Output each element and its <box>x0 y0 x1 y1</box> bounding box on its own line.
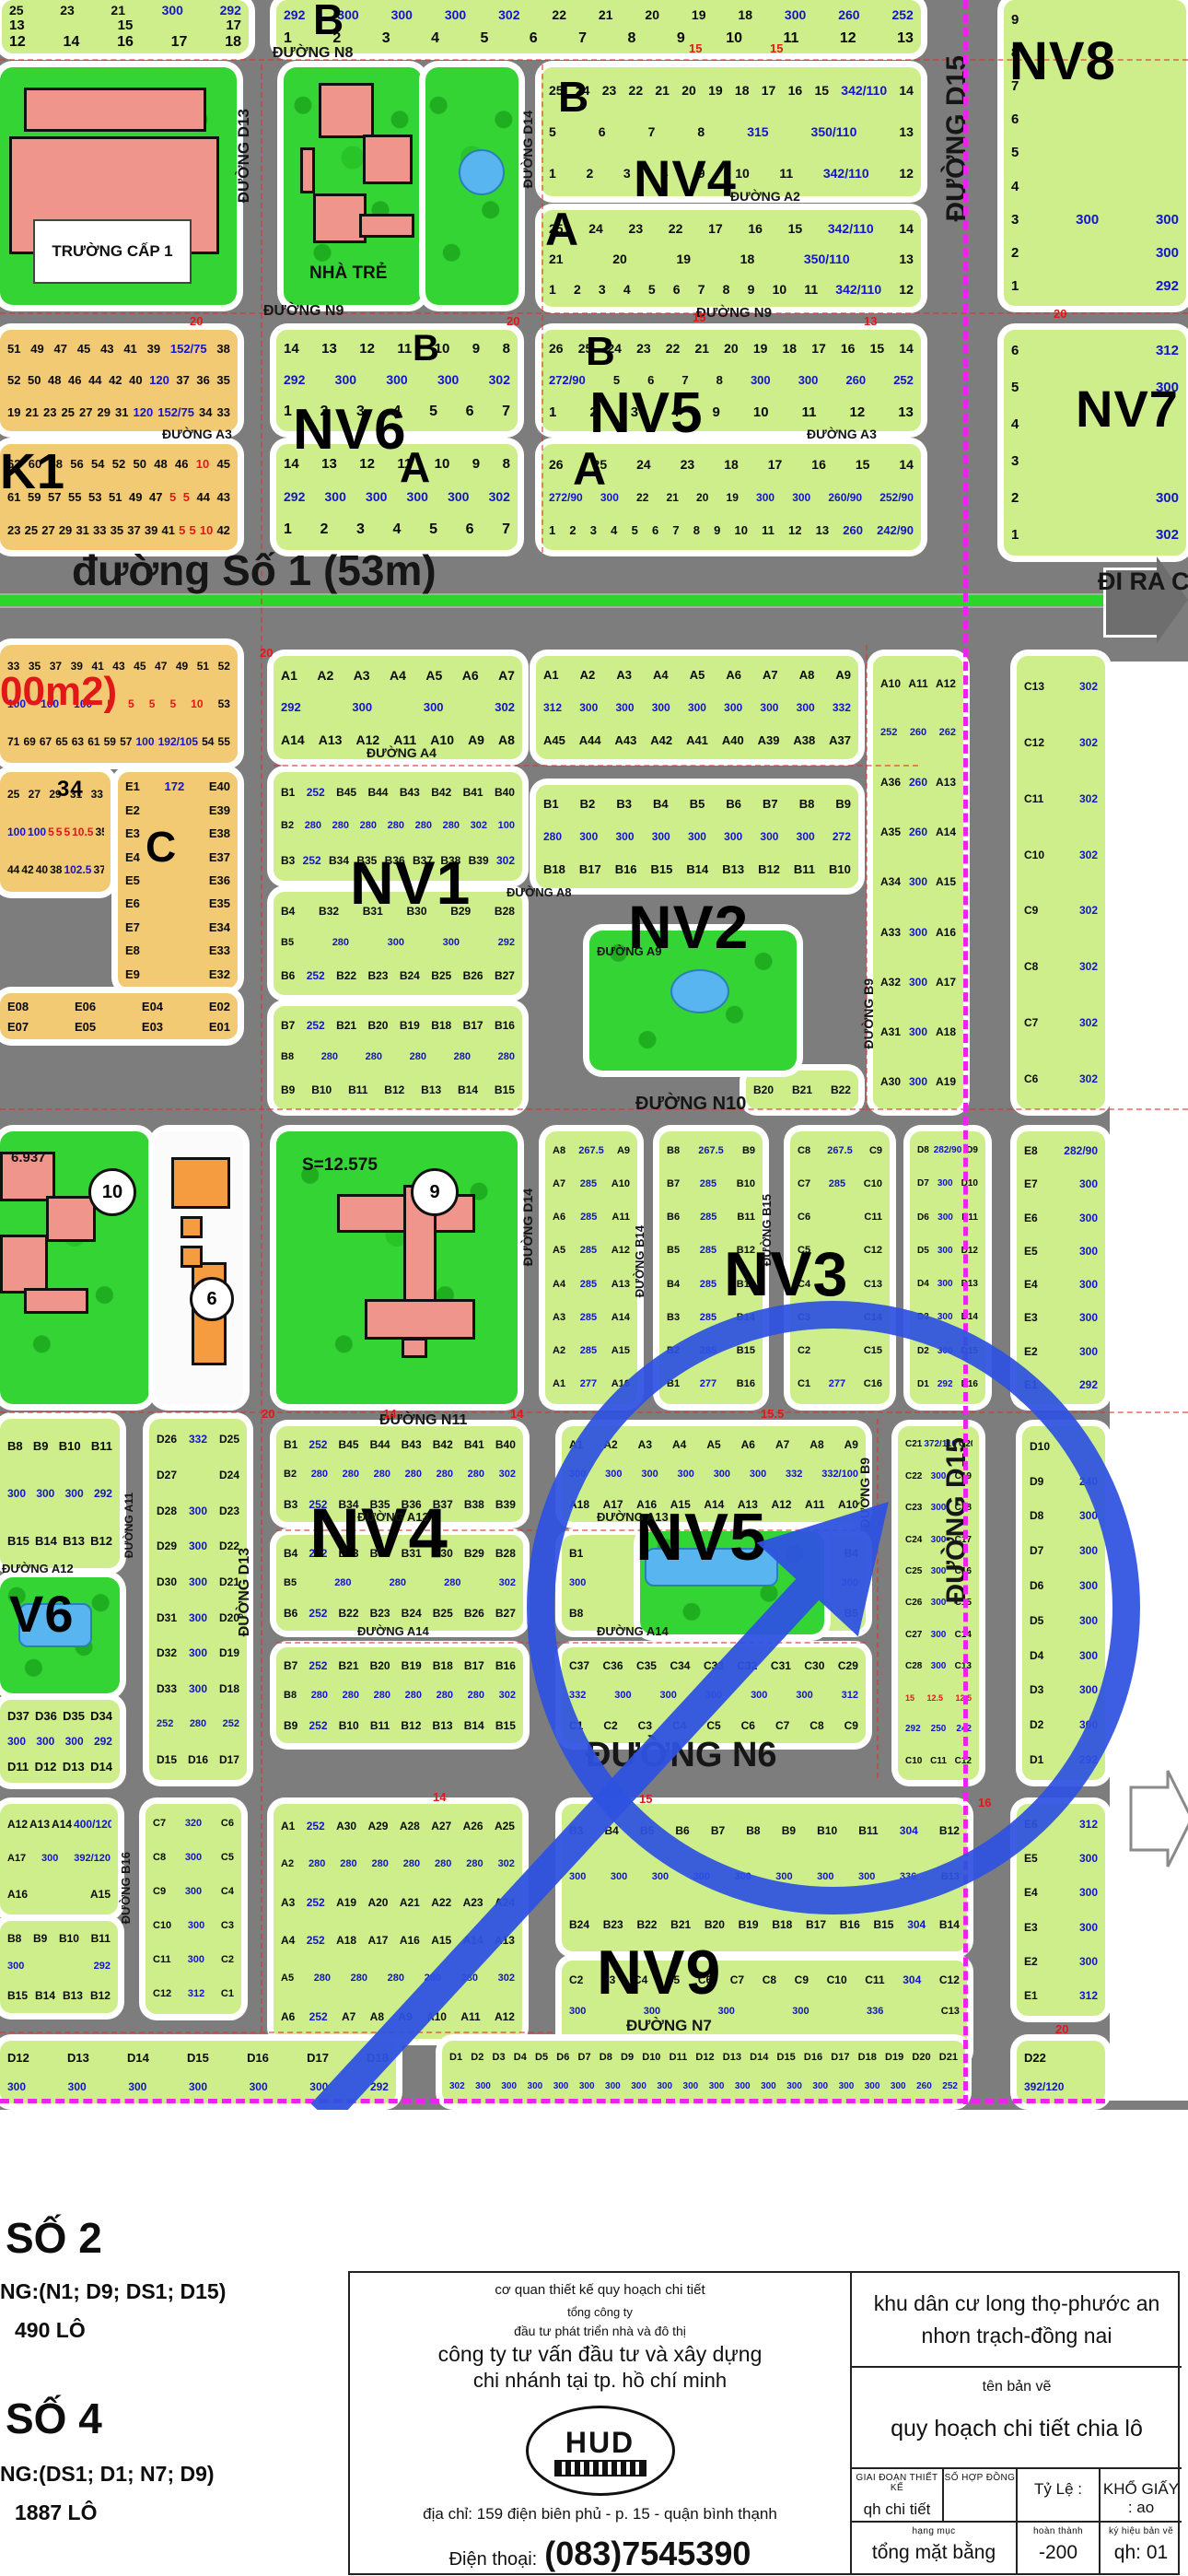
plot-row: 300292 <box>6 1961 111 1972</box>
plot-row: A5285A12 <box>552 1246 631 1256</box>
plot-row: B18B17B16B15B14B13B12B11B10 <box>542 863 852 875</box>
dimension-label: 20 <box>262 1408 274 1420</box>
phone-label: Điện thoại: <box>449 2549 538 2570</box>
pond <box>459 149 505 195</box>
road-centerline <box>0 312 1188 314</box>
plot-row: E2300 <box>1023 1956 1099 1967</box>
plot-row: 300300300300300300300300336B13 <box>568 1872 961 1882</box>
zone-label-b: B <box>413 332 440 366</box>
designer-phone-row: Điện thoại: (083)7545390 <box>350 2535 850 2573</box>
plot-block-nv3-a: A8267.5A9A7285A10A6285A11A5285A12A4285A1… <box>545 1131 637 1404</box>
plot-row: D3300D14 <box>916 1313 979 1322</box>
building <box>300 147 315 193</box>
plot-row: D9240 <box>1029 1476 1099 1487</box>
street-label: ĐƯỜNG A3 <box>162 427 232 440</box>
plot-row: 10010055510.53536 <box>6 826 104 837</box>
plot-row: C8267.5C9 <box>797 1146 883 1156</box>
plot-block-nv2-b: B1B2B3B4B5B6B7B8B92803003003003003003003… <box>536 785 858 888</box>
plot-row: A3285A14 <box>552 1313 631 1323</box>
plot-row: 292250242 <box>904 1725 973 1734</box>
plot-row: D12D13D14D15D16D17D18 <box>6 2052 390 2064</box>
dimension-label: 14 <box>510 1408 523 1420</box>
drawing-name-value: quy hoạch chi tiết chia lô <box>852 2416 1182 2442</box>
title-block-designer: cơ quan thiết kế quy hoạch chi tiết tổng… <box>350 2273 852 2573</box>
plot-row: 332300300300300300312 <box>568 1691 859 1701</box>
plot-row: E4E37 <box>124 851 231 863</box>
plot-row: 1512.512.5 <box>904 1694 973 1703</box>
completion-cell: hoàn thành -200 <box>1018 2523 1101 2575</box>
plot-row: C9302 <box>1023 905 1099 916</box>
sheet-code-value: qh: 01 <box>1101 2542 1182 2564</box>
plot-block-c-block: E1172E40E2E39E3E38E4E37E5E36E6E35E7E34E8… <box>118 772 238 989</box>
plot-row: E1292 <box>1023 1379 1099 1390</box>
plot-row: 6 <box>1010 112 1180 126</box>
category-label: hạng mục <box>852 2526 1016 2536</box>
building <box>359 214 414 238</box>
plot-row: B20B21B22 <box>752 1084 852 1095</box>
plot-row: D1D2D3D4D5D6D7D8D9D10D11D12D13D14D15D16D… <box>448 2053 959 2063</box>
plot-row: 21201918350/11013 <box>548 252 914 265</box>
plot-block-nv5-r3: C37C36C35C34C33C32C31C30C293323003003003… <box>562 1647 866 1743</box>
plot-block-k1-upper: 51494745434139152/7538525048464442401203… <box>0 330 238 431</box>
plot-row: B8267.5B9 <box>666 1146 756 1156</box>
phone-number: (083)7545390 <box>544 2535 751 2573</box>
plot-block-d-row-right: D1D2D3D4D5D6D7D8D9D10D11D12D13D14D15D16D… <box>442 2041 965 2103</box>
plot-row: B6252B22B23B24B25B26B27 <box>280 970 516 981</box>
plot-block-c-strip: C13302C12302C11302C10302C9302C8302C7302C… <box>1017 656 1105 1109</box>
building <box>171 1157 230 1209</box>
building <box>181 1246 203 1268</box>
map-label: 6.937 <box>11 1150 46 1165</box>
title-block-row3: GIAI ĐOẠN THIẾT KẾ qh chi tiết SỐ HỢP ĐỒ… <box>852 2469 1182 2523</box>
street-label: ĐƯỜNG A8 <box>507 886 572 898</box>
plot-row: C7302 <box>1023 1017 1099 1028</box>
street-label: ĐƯỜNG A12 <box>2 1563 74 1575</box>
plot-row: 3 <box>1010 454 1180 468</box>
zone-label-a: A <box>400 448 431 486</box>
street-label: ĐƯỜNG A4 <box>367 746 437 759</box>
plot-row: A1A2A3A4A5A6A7 <box>280 669 516 682</box>
page: { "meta":{"kind":"urban land-lot plannin… <box>0 0 1188 2576</box>
plot-row: E5300 <box>1023 1853 1099 1864</box>
dimension-label: 15 <box>693 311 705 323</box>
plot-row: 7169676563615957100192/1055455 <box>6 736 231 747</box>
zone-label-nv9: NV9 <box>597 1944 721 2002</box>
street-label: ĐƯỜNG D13 <box>236 109 251 203</box>
designer-company: công ty tư vấn đầu tư và xây dựng <box>350 2342 850 2367</box>
plot-row: C28300C13 <box>904 1662 973 1671</box>
dimension-label: 15.5 <box>761 1408 784 1420</box>
plot-row: B6252B22B23B24B25B26B27 <box>283 1608 517 1619</box>
plot-row: B7252B21B20B19B18B17B16 <box>283 1660 517 1671</box>
plot-row: E8282/90 <box>1023 1145 1099 1156</box>
category-value: tổng mặt bằng <box>852 2542 1016 2564</box>
zone-label-nv5: NV5 <box>589 387 704 439</box>
plot-row: 1292 <box>1010 279 1180 293</box>
legend-zone-4-lots: 1887 LÔ <box>15 2500 98 2525</box>
plot-row: A12A13A14400/120 <box>6 1819 111 1830</box>
plot-row: C12302 <box>1023 737 1099 748</box>
paper-size-cell: KHỔ GIẤY : ao <box>1101 2469 1182 2521</box>
plot-block-nv9-e: E6312E5300E4300E3300E2300E1312 <box>1017 1804 1105 2016</box>
plot-row: C37C36C35C34C33C32C31C30C29 <box>568 1660 859 1671</box>
plot-row: 12345678910111213 <box>283 31 914 46</box>
pond <box>670 969 729 1013</box>
street-label: ĐƯỜNG N6 <box>586 1738 777 1773</box>
road-centerline <box>261 64 262 2032</box>
plot-row: D37D36D35D34 <box>6 1710 113 1722</box>
site-plan-map: 2523213002921315171214161718292300300300… <box>0 0 1188 2110</box>
zone-label-34: 34 <box>57 779 84 800</box>
plot-row: A17300392/120 <box>6 1854 111 1864</box>
plot-row: D30300D21 <box>156 1576 240 1587</box>
facility-number-badge: 10 <box>88 1168 136 1216</box>
plot-row: B24B23B22B21B20B19B18B17B16B15304B14 <box>568 1919 961 1930</box>
plot-row: C27300C14 <box>904 1631 973 1640</box>
dimension-label: 15 <box>770 42 783 54</box>
zone-label-nv8: NV8 <box>1009 37 1116 86</box>
map-label: NHÀ TRẺ <box>309 263 387 284</box>
plot-row: D33300D18 <box>156 1683 240 1694</box>
dimension-label: 15 <box>639 1793 652 1805</box>
building <box>363 135 413 184</box>
legend-zone-2-lots: 490 LÔ <box>15 2318 86 2343</box>
plot-row: B2285B15 <box>666 1346 756 1356</box>
plot-row: 2524232221201918171615342/11014 <box>548 84 914 97</box>
street-label: ĐI RA CẢ <box>1098 569 1188 594</box>
plot-row: E5E36 <box>124 874 231 886</box>
plot-row: B8280280280280280 <box>280 1052 516 1062</box>
plot-row: 23252729313335373941551042 <box>6 524 231 536</box>
plot-row: 300300300300300300292 <box>6 2081 390 2092</box>
plot-row: A8267.5A9 <box>552 1146 631 1156</box>
design-stage-label: GIAI ĐOẠN THIẾT KẾ <box>852 2473 942 2493</box>
plot-row: D2300 <box>1029 1719 1099 1730</box>
plot-row: E7300 <box>1023 1178 1099 1189</box>
boundary-line <box>963 0 968 2104</box>
plot-row: A1252A30A29A28A27A26A25 <box>280 1821 516 1832</box>
legend-zone-4-roads: NG:(DS1; D1; N7; D9) <box>0 2462 215 2487</box>
plot-block-nv9-b: B3B4B5B6B7B8B9B10B11304B1230030030030030… <box>562 1804 967 1951</box>
paper-size-label: KHỔ GIẤY : ao <box>1101 2480 1182 2517</box>
plot-row: E6E35 <box>124 897 231 909</box>
dimension-label: 16 <box>978 1797 991 1809</box>
plot-row: B2280280280280280280302 <box>283 1469 517 1480</box>
designer-corp-1: tổng công ty <box>350 2305 850 2319</box>
plot-row: A1277A16 <box>552 1379 631 1389</box>
project-name-line2: nhơn trạch-đồng nai <box>922 2324 1112 2348</box>
project-name-cell: khu dân cư long thọ-phước an nhơn trạch-… <box>852 2273 1182 2368</box>
street-label: ĐƯỜNG A14 <box>357 1625 429 1637</box>
plot-row: A6285A11 <box>552 1212 631 1223</box>
plot-row: A10A11A12 <box>879 678 957 689</box>
exit-arrow-right-icon <box>1129 1769 1188 1870</box>
plot-row: D27D24 <box>156 1469 240 1481</box>
plot-row: B1252B45B44B43B42B41B40 <box>280 787 516 798</box>
plot-row: E6300 <box>1023 1212 1099 1224</box>
street-label: ĐƯỜNG D14 <box>521 111 534 188</box>
dimension-label: 20 <box>190 315 203 327</box>
plot-row: B6285B11 <box>666 1212 756 1223</box>
plot-row: 25242322171615342/11014 <box>548 222 914 235</box>
road-centerline <box>0 2032 553 2033</box>
plot-block-nv4-top-a: 25242322171615342/1101421201918350/11013… <box>542 210 921 307</box>
plot-row: B8280280280280280280302 <box>283 1691 517 1701</box>
legend-zone-2-title: SỐ 2 <box>6 2213 102 2263</box>
plot-row: 6312 <box>1010 344 1180 357</box>
street-label: ĐƯỜNG B15 <box>761 1194 773 1266</box>
plot-row: E2300 <box>1023 1346 1099 1357</box>
plot-row: 141312111098 <box>283 342 511 356</box>
plot-block-nv2-a: A1A2A3A4A5A6A7A8A93123003003003003003003… <box>536 656 858 759</box>
plot-row: C10C11C12 <box>904 1757 973 1766</box>
completion-label: hoàn thành <box>1018 2526 1099 2536</box>
plot-row: C2C15 <box>797 1346 883 1356</box>
plot-row: 52504846444240120373635 <box>6 374 231 386</box>
plot-row: A1A2A3A4A5A6A7A8A9 <box>542 669 852 681</box>
map-label: TRƯỜNG CẤP 1 <box>33 219 192 284</box>
zone-label-nv3: NV3 <box>724 1246 848 1304</box>
plot-block-nv9-a: A1252A30A29A28A27A26A25A2280280280280280… <box>274 1804 522 2039</box>
plot-row: D26332D25 <box>156 1434 240 1445</box>
street-label: ĐƯỜNG A14 <box>597 1625 669 1637</box>
zone-label-b: B <box>558 77 589 116</box>
plot-row: A4285A13 <box>552 1280 631 1290</box>
dimension-label: 15 <box>689 42 702 54</box>
plot-row: C8300C5 <box>152 1853 235 1863</box>
plot-row: D5300 <box>1029 1615 1099 1626</box>
plot-row: B15B14B13B12 <box>6 1990 111 2001</box>
plot-row: 12345678910111213260242/90 <box>548 524 914 536</box>
contract-no-cell: SỐ HỢP ĐỒNG <box>944 2469 1018 2521</box>
designer-corp-2: đầu tư phát triển nhà và đô thị <box>350 2324 850 2338</box>
plot-row: B15B14B13B12 <box>6 1535 113 1547</box>
plot-row: D32300D19 <box>156 1647 240 1658</box>
street-label: ĐƯỜNG N9 <box>263 304 344 319</box>
plot-row: D11D12D13D14 <box>6 1761 113 1773</box>
plot-row: A36260A13 <box>879 777 957 788</box>
plot-row: A32300A17 <box>879 977 957 988</box>
plot-row: D29300D22 <box>156 1540 240 1551</box>
street-label: ĐƯỜNG A13 <box>357 1511 429 1523</box>
plot-row: C3C14 <box>797 1313 883 1323</box>
plot-row: 3300300 <box>1010 213 1180 227</box>
plot-row: A33300A16 <box>879 927 957 938</box>
zone-label-nv7: NV7 <box>1076 385 1179 433</box>
plot-row: D4300 <box>1029 1650 1099 1661</box>
sheet-code-cell: ký hiệu bản vẽ qh: 01 <box>1101 2523 1182 2575</box>
plot-block-top-left-plots: 2523213002921315171214161718 <box>2 0 249 53</box>
plot-row: A2285A15 <box>552 1346 631 1356</box>
facility-number-badge: 9 <box>411 1168 459 1216</box>
plot-row: B3285B14 <box>666 1313 756 1323</box>
plot-row: 5 <box>1010 146 1180 159</box>
dimension-label: 20 <box>1055 2023 1068 2035</box>
zone-label-v6: V6 <box>9 1590 75 1638</box>
plot-row: E7E34 <box>124 921 231 933</box>
plot-row: A5280280280280280302 <box>280 1973 516 1984</box>
plot-row: E3300 <box>1023 1922 1099 1933</box>
designer-branch: chi nhánh tại tp. hồ chí minh <box>350 2369 850 2393</box>
plot-row: 51494745434139152/7538 <box>6 343 231 355</box>
hud-logo-text: HUD <box>565 2426 635 2460</box>
plot-row: A31300A18 <box>879 1026 957 1037</box>
plot-row: D5300D12 <box>916 1247 979 1256</box>
plot-row: 292300300300300302 <box>283 490 511 503</box>
plot-row: A34300A15 <box>879 876 957 887</box>
plot-block-west-b: B8B9B10B11300300300292B15B14B13B12 <box>0 1419 120 1568</box>
plot-row: D3300 <box>1029 1684 1099 1695</box>
plot-block-nv2-b-bottom: B20B21B22 <box>746 1071 858 1109</box>
plot-row: B8B9B10B11 <box>6 1933 111 1944</box>
contract-no-label: SỐ HỢP ĐỒNG <box>944 2473 1016 2483</box>
project-name-line1: khu dân cư long thọ-phước an <box>874 2291 1160 2316</box>
plot-row: D6300 <box>1029 1580 1099 1591</box>
building <box>181 1216 203 1238</box>
road-centerline <box>0 1108 1188 1110</box>
plot-row: C10302 <box>1023 849 1099 861</box>
road-centerline <box>274 765 918 767</box>
plot-block-nv3-e: E8282/90E7300E6300E5300E4300E3300E2300E1… <box>1017 1131 1105 1404</box>
title-block: cơ quan thiết kế quy hoạch chi tiết tổng… <box>348 2271 1180 2575</box>
plot-block-nv2-a-strip: A10A11A12252260262A36260A13A35260A14A343… <box>873 656 963 1109</box>
title-block-project: khu dân cư long thọ-phước an nhơn trạch-… <box>852 2273 1182 2573</box>
zone-label-nv1: NV1 <box>350 855 471 911</box>
street-label: ĐƯỜNG N8 <box>273 46 353 61</box>
plot-row: 312300300300300300300300332 <box>542 702 852 713</box>
plot-row: C11300C2 <box>152 1955 235 1965</box>
street-label: ĐƯỜNG N9 <box>696 306 772 320</box>
plot-row: D8300 <box>1029 1510 1099 1521</box>
street-label: ĐƯỜNG B16 <box>120 1852 132 1924</box>
plot-row: 392/120 <box>1023 2081 1099 2092</box>
plot-row: 5678315350/11013 <box>548 125 914 138</box>
plot-block-d22: D22392/120 <box>1017 2041 1105 2103</box>
plot-block-nv9-c-col: C7320C6C8300C5C9300C4C10300C3C11300C2C12… <box>146 1804 241 2014</box>
plot-row: C6C11 <box>797 1212 883 1223</box>
hud-logo: HUD <box>526 2406 675 2496</box>
plot-block-nv1-b3: B7252B21B20B19B18B17B16B8280280280280280… <box>274 1006 522 1109</box>
plot-row: B3B4B5B6B7B8B9B10B11304B12 <box>568 1825 961 1836</box>
dimension-label: 14 <box>433 1791 446 1803</box>
street-label: ĐƯỜNG A11 <box>123 1493 134 1558</box>
street-label: ĐƯỜNG A2 <box>730 190 800 203</box>
plot-row: E07E05E03E01 <box>6 1021 231 1033</box>
plot-row: 280300300300300300300300272 <box>542 831 852 842</box>
road-centerline <box>542 64 543 553</box>
zone-label-c: C <box>146 827 177 866</box>
facility-number-badge: 6 <box>190 1277 234 1321</box>
plot-row: A45A44A43A42A41A40A39A38A37 <box>542 734 852 746</box>
plot-row: D4300D13 <box>916 1280 979 1289</box>
plot-row: E6312 <box>1023 1819 1099 1830</box>
road-centerline <box>0 1411 1188 1413</box>
plot-row: A1A2A3A4A5A6A7A8A9 <box>568 1439 859 1450</box>
dimension-label: 13 <box>864 315 877 327</box>
boundary-line <box>0 2099 1105 2103</box>
zone-label-nv4: NV4 <box>634 155 737 203</box>
zone-label-b: B <box>313 0 344 39</box>
plot-row: A6252A7A8A9A10A11A12 <box>280 2011 516 2022</box>
street-label: ĐƯỜNG N10 <box>635 1095 746 1113</box>
plot-row: A30300A19 <box>879 1076 957 1087</box>
plot-block-nv1-orange-2: 252729313310010055510.5353644424038102.5… <box>0 772 111 892</box>
plot-row: 2300 <box>1010 491 1180 505</box>
legend-zone-4-title: SỐ 4 <box>6 2394 102 2443</box>
street-label: ĐƯỜNG N7 <box>626 2018 712 2033</box>
building <box>46 1196 96 1242</box>
plot-row: E2E39 <box>124 804 231 816</box>
sheet-code-label: ký hiệu bản vẽ <box>1101 2526 1182 2536</box>
road-so1-green-median <box>0 595 1153 606</box>
legend-zone-2-roads: NG:(N1; D9; DS1; D15) <box>0 2279 226 2304</box>
plot-row: 19212325272931120152/753433 <box>6 406 231 418</box>
street-label: ĐƯỜNG B9 <box>858 1458 871 1528</box>
plot-row: D31300D20 <box>156 1612 240 1623</box>
completion-value: -200 <box>1018 2542 1099 2564</box>
plot-row: D7300D10 <box>916 1179 979 1188</box>
street-label: ĐƯỜNG A3 <box>807 427 877 440</box>
plot-row: C11302 <box>1023 793 1099 804</box>
map-label: S=12.575 <box>302 1155 378 1176</box>
road-centerline <box>276 1642 866 1644</box>
plot-row: A7285A10 <box>552 1179 631 1189</box>
plot-row: D10 <box>1029 1441 1099 1452</box>
street-label: đường Số 1 (53m) <box>72 549 437 591</box>
plot-block-d-col: D26332D25D27D24D28300D23D29300D22D30300D… <box>149 1419 247 1780</box>
plot-row: E4300 <box>1023 1279 1099 1290</box>
plot-row: A3252A19A20A21A22A23A24 <box>280 1897 516 1908</box>
scale-label: Tỷ Lệ : <box>1018 2480 1099 2499</box>
drawing-name-cell: tên bản vẽ quy hoạch chi tiết chia lô <box>852 2368 1182 2469</box>
plot-row: D1292 <box>1029 1754 1099 1765</box>
plot-row: C6302 <box>1023 1073 1099 1084</box>
plot-row: 1302 <box>1010 528 1180 542</box>
plot-row: A35260A14 <box>879 826 957 837</box>
plot-row: 9 <box>1010 13 1180 27</box>
zone-label-k1: K1 <box>0 450 65 496</box>
plot-row: B1B2B3B4B5B6B7B8B9 <box>542 798 852 810</box>
map-label: 00m2) <box>0 669 117 716</box>
plot-row: A2280280280280280280302 <box>280 1859 516 1869</box>
plot-row: C10300C3 <box>152 1921 235 1931</box>
plot-row: E1312 <box>1023 1990 1099 2001</box>
hud-logo-hatch <box>554 2460 646 2476</box>
plot-row: C9300C4 <box>152 1887 235 1897</box>
plot-row: C13302 <box>1023 681 1099 692</box>
plot-row: 252321300292 <box>8 4 242 17</box>
plot-row: E3300 <box>1023 1312 1099 1323</box>
plot-row: 300300300292 <box>6 1488 113 1499</box>
title-block-row4: hạng mục tổng mặt bằng hoàn thành -200 k… <box>852 2523 1182 2575</box>
plot-row: 252280252 <box>156 1719 240 1729</box>
plot-row: D2300D15 <box>916 1347 979 1356</box>
street-label: ĐƯỜNG D13 <box>238 1548 252 1636</box>
building <box>24 1288 88 1314</box>
plot-row: B7252B21B20B19B18B17B16 <box>280 1020 516 1031</box>
street-label: ĐƯỜNG B9 <box>862 978 875 1048</box>
plot-row: D6300D11 <box>916 1213 979 1223</box>
plot-row: 4 <box>1010 180 1180 193</box>
plot-row: D28300D23 <box>156 1505 240 1516</box>
plot-row: B8B9B10B11 <box>6 1440 113 1452</box>
street-label: ĐƯỜNG D14 <box>521 1188 534 1266</box>
plot-row: B9252B10B11B12B13B14B15 <box>283 1720 517 1731</box>
plot-row: B7285B10 <box>666 1179 756 1189</box>
plot-row: C1C2C3C4C5C6C7C8C9 <box>568 1720 859 1731</box>
plot-block-nv3-d: D8282/90D9D7300D10D6300D11D5300D12D4300D… <box>910 1131 985 1404</box>
plot-row: 131517 <box>8 18 242 32</box>
